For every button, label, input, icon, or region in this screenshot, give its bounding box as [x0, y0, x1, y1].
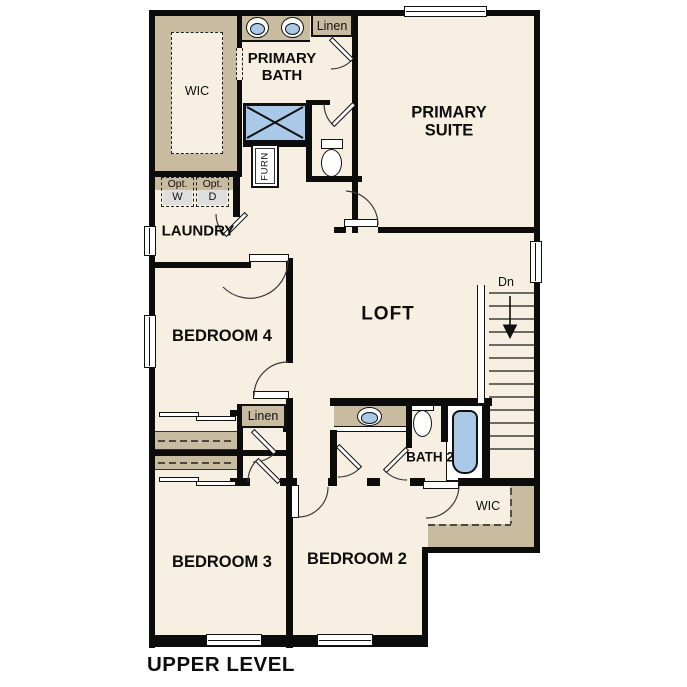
- opt-washer-label: W: [163, 190, 192, 205]
- bath2-toilet-bowl: [413, 410, 432, 437]
- primary-sink-right: [281, 17, 304, 38]
- window-primary-suite-top: [404, 6, 487, 17]
- stair-down-label: Dn: [498, 275, 514, 289]
- bath2-tub-surround: [446, 405, 484, 481]
- wall-segment: [286, 258, 293, 363]
- bedroom3-closet-shelf: [155, 456, 237, 470]
- wall-segment: [458, 478, 540, 486]
- bedroom2-wic-door: [423, 481, 459, 489]
- bedroom2-wic-shelving-bottom: [428, 524, 534, 547]
- bedroom4-closet-door: [196, 416, 236, 421]
- linen-closet-upper: Linen: [311, 14, 353, 37]
- window-loft-right: [530, 241, 542, 283]
- opt-washer-top-label: Opt.: [162, 178, 193, 190]
- opt-dryer-label: D: [198, 190, 227, 205]
- furnace-label: FURN: [260, 152, 271, 180]
- wall-segment: [237, 80, 242, 177]
- bedroom2-door: [291, 485, 299, 518]
- wall-segment: [334, 227, 346, 233]
- wall-segment: [352, 16, 358, 233]
- floor-plan: Linen Linen FURN Opt. W Opt. D: [0, 0, 687, 687]
- wall-segment: [306, 176, 362, 182]
- room-label-bedroom2-wic: WIC: [476, 499, 500, 513]
- bedroom4-closet-door: [159, 412, 199, 417]
- room-label-primary-wic: WIC: [185, 84, 209, 98]
- room-label-laundry: LAUNDRY: [162, 224, 235, 241]
- bedroom4-hall-door: [253, 391, 289, 399]
- wall-segment: [149, 450, 293, 456]
- opt-dryer-top-label: Opt.: [197, 178, 228, 190]
- room-label-bedroom2: BEDROOM 2: [307, 550, 407, 568]
- window-bedroom2-bottom: [317, 634, 373, 646]
- primary-sink-left: [246, 17, 269, 38]
- room-label-bedroom3: BEDROOM 3: [172, 553, 272, 571]
- stair-railing: [477, 285, 485, 403]
- room-label-primary-bath: PRIMARY BATH: [242, 51, 322, 85]
- furnace-closet: FURN: [251, 144, 279, 188]
- wall-segment: [237, 16, 242, 48]
- bath2-sink: [357, 407, 382, 426]
- bedroom3-closet-door: [159, 477, 199, 482]
- bedroom4-corridor-door: [249, 254, 289, 262]
- plan-title: UPPER LEVEL: [147, 653, 295, 677]
- wall-segment: [422, 547, 428, 647]
- room-label-bath2: BATH 2: [406, 449, 454, 464]
- bedroom4-closet-shelf: [155, 431, 237, 450]
- optional-washer: Opt. W: [161, 177, 194, 207]
- bedroom3-closet-door: [196, 481, 236, 486]
- wall-segment: [286, 398, 293, 648]
- linen-upper-label: Linen: [317, 19, 348, 33]
- primary-suite-door: [344, 219, 378, 227]
- wall-segment: [441, 406, 448, 442]
- linen-hall-label: Linen: [248, 409, 279, 423]
- wall-segment: [367, 478, 380, 486]
- bath2-tub: [452, 410, 478, 474]
- primary-toilet-bowl: [321, 149, 342, 177]
- wall-segment: [330, 430, 337, 478]
- wall-segment: [149, 262, 251, 268]
- wall-segment: [482, 398, 490, 486]
- room-label-bedroom4: BEDROOM 4: [172, 327, 272, 345]
- wall-segment: [306, 100, 330, 105]
- room-label-primary-suite: PRIMARY SUITE: [397, 104, 501, 141]
- wall-segment: [406, 398, 412, 448]
- wall-segment: [422, 547, 540, 553]
- wall-segment: [378, 227, 534, 233]
- bath2-vanity-apron: [334, 427, 407, 432]
- room-label-loft: LOFT: [361, 303, 415, 324]
- primary-toilet-tank: [321, 139, 343, 149]
- window-laundry-left: [144, 226, 156, 256]
- window-bedroom4-left: [144, 315, 156, 368]
- wall-segment: [328, 478, 337, 486]
- optional-dryer: Opt. D: [196, 177, 229, 207]
- linen-closet-hall: Linen: [240, 404, 286, 428]
- wall-segment: [233, 177, 240, 217]
- window-bedroom3-bottom: [206, 634, 262, 646]
- primary-shower: [243, 103, 308, 143]
